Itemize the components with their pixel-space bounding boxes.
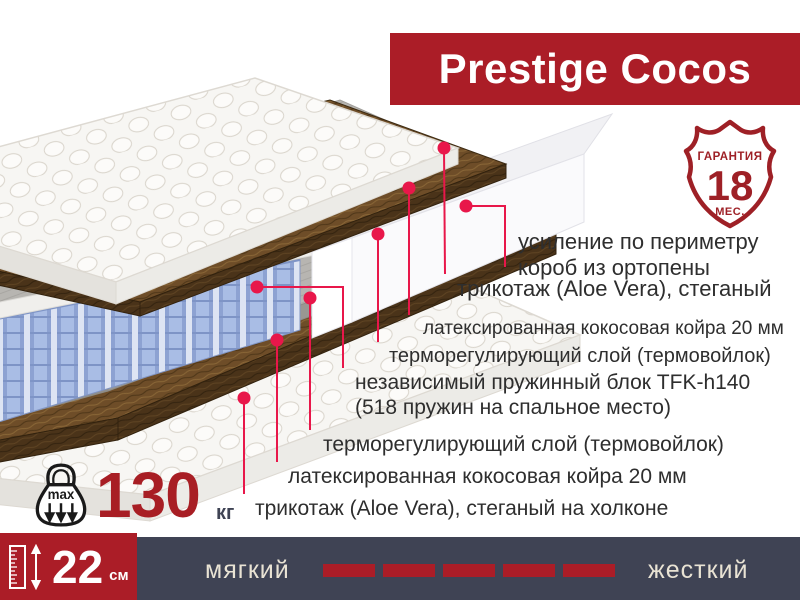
layer-label-3: латексированная кокосовая койра 20 мм: [423, 317, 784, 340]
firmness-dash: [503, 564, 555, 577]
layer-label-2: трикотаж (Aloe Vera), стеганый: [457, 276, 772, 302]
ruler-height-icon: [8, 544, 48, 590]
max-label: max: [48, 487, 75, 502]
height-unit: см: [109, 567, 128, 584]
layer-label-1: усиление по периметрукороб из ортопены: [518, 229, 759, 281]
badge-warranty-value: 18: [676, 162, 784, 210]
firmness-dash: [563, 564, 615, 577]
firmness-dash: [443, 564, 495, 577]
warranty-badge: ГАРАНТИЯ 18 МЕС.: [676, 118, 784, 230]
layer-label-5: независимый пружинный блок TFK-h140(518 …: [355, 370, 750, 420]
height-arrow-icon: [33, 546, 40, 588]
firmness-dash: [383, 564, 435, 577]
firmness-hard-label: жесткий: [648, 556, 748, 585]
firmness-soft-label: мягкий: [205, 556, 290, 585]
max-weight-unit: кг: [216, 502, 234, 525]
badge-warranty-unit: МЕС.: [676, 206, 784, 218]
layer-label-4: терморегулирующий слой (термовойлок): [389, 344, 771, 368]
height-block: 22 см: [0, 533, 137, 600]
layer-label-7: латексированная кокосовая койра 20 мм: [288, 464, 687, 489]
layer-label-6: терморегулирующий слой (термовойлок): [323, 432, 724, 457]
layer-label-8: трикотаж (Aloe Vera), стеганый на холкон…: [255, 496, 668, 521]
kettlebell-max-weight-icon: max: [28, 460, 94, 530]
firmness-scale: [323, 564, 615, 577]
height-value: 22: [52, 540, 103, 594]
down-arrows-icon: [46, 503, 76, 521]
product-title: Prestige Cocos: [439, 45, 752, 93]
firmness-dash: [323, 564, 375, 577]
title-banner: Prestige Cocos: [390, 33, 800, 105]
max-weight-value: 130: [96, 458, 200, 532]
